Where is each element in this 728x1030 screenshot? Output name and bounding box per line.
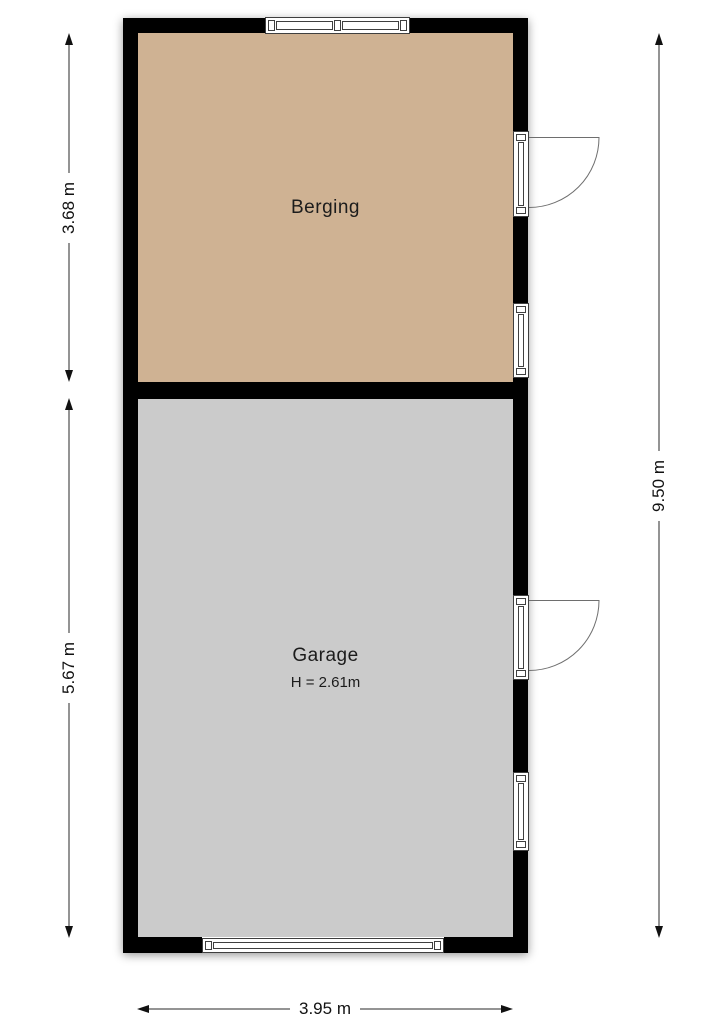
door-frame-cap [434, 941, 441, 950]
wall-top-right-segment [410, 18, 528, 33]
berging-top-window [265, 17, 410, 34]
floorplan-canvas: Berging Garage H = 2.61m [0, 0, 728, 1030]
dimension-garage-height: 5.67 m [62, 398, 75, 938]
dimension-total-width: 3.95 m [137, 1002, 513, 1015]
dimension-total-height: 9.50 m [652, 33, 665, 938]
door-frame-cap [205, 941, 212, 950]
arrow-up-icon [65, 398, 73, 410]
dimension-label: 3.68 m [59, 173, 79, 243]
arrow-down-icon [65, 370, 73, 382]
door-frame-cap [516, 134, 526, 141]
window-pane [518, 314, 524, 367]
window-frame-cap [516, 368, 526, 375]
arrow-left-icon [137, 1005, 149, 1013]
wall-right-segment-1 [513, 18, 528, 131]
wall-left [123, 18, 138, 953]
wall-interior-divider [123, 382, 528, 399]
arrow-down-icon [655, 926, 663, 938]
garage-door-pane [213, 942, 433, 949]
door-leaf-panel [518, 142, 524, 206]
room-height-label-garage: H = 2.61m [291, 674, 361, 691]
room-berging: Berging [138, 33, 513, 382]
window-pane [342, 21, 399, 30]
dimension-berging-height: 3.68 m [62, 33, 75, 382]
door-swing-arc-icon [529, 137, 601, 210]
dimension-label: 9.50 m [649, 451, 669, 521]
arrow-up-icon [65, 33, 73, 45]
window-pane [276, 21, 333, 30]
garage-door-swing [529, 600, 601, 673]
door-swing-arc-icon [529, 600, 601, 673]
room-label-berging: Berging [291, 197, 360, 219]
arrow-down-icon [65, 926, 73, 938]
door-frame-cap [516, 670, 526, 677]
berging-right-window [513, 303, 529, 378]
door-frame-cap [516, 207, 526, 214]
berging-door-panel [513, 131, 529, 217]
wall-bottom-left-segment [123, 937, 202, 953]
window-frame-cap [516, 841, 526, 848]
window-pane [518, 783, 524, 840]
dimension-label: 3.95 m [290, 999, 360, 1019]
window-frame-cap [516, 775, 526, 782]
garage-bottom-door [202, 938, 444, 953]
window-frame-cap [516, 306, 526, 313]
door-frame-cap [516, 598, 526, 605]
garage-right-window [513, 772, 529, 851]
arrow-right-icon [501, 1005, 513, 1013]
wall-bottom-right-segment [444, 937, 528, 953]
wall-right-segment-2 [513, 217, 528, 303]
window-frame-cap [268, 20, 275, 31]
wall-right-segment-4 [513, 680, 528, 772]
dimension-label: 5.67 m [59, 633, 79, 703]
wall-top-left-segment [123, 18, 265, 33]
garage-door-panel [513, 595, 529, 680]
arrow-up-icon [655, 33, 663, 45]
berging-door-swing [529, 137, 601, 210]
window-mullion [334, 20, 341, 31]
room-garage: Garage H = 2.61m [138, 399, 513, 937]
wall-right-segment-3 [513, 378, 528, 595]
window-frame-cap [400, 20, 407, 31]
door-leaf-panel [518, 606, 524, 669]
room-label-garage: Garage [292, 645, 358, 667]
